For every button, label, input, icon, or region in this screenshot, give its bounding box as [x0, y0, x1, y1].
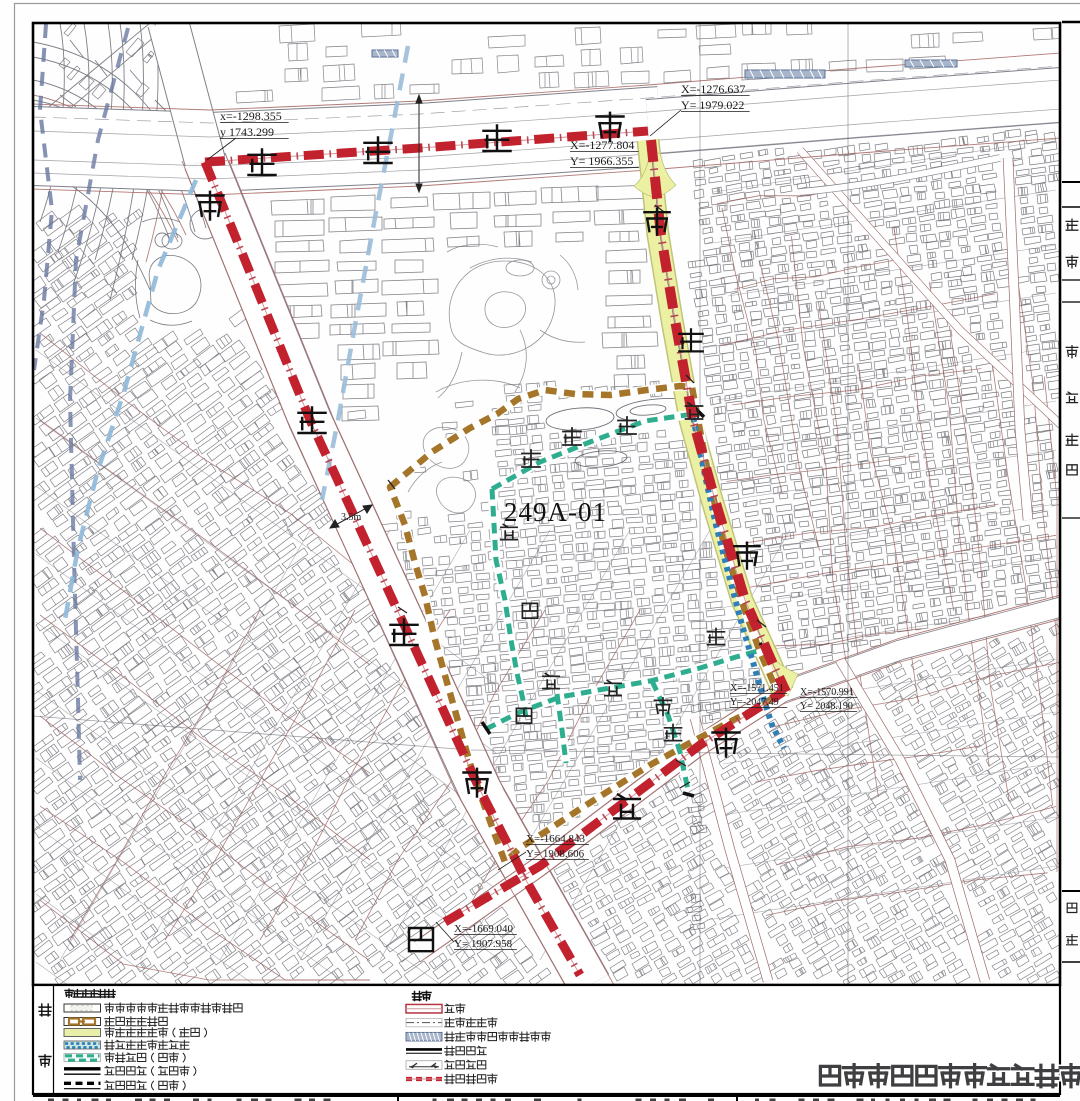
- svg-text:Y= 2048.190: Y= 2048.190: [800, 701, 853, 712]
- svg-text:y 1743.299: y 1743.299: [220, 125, 274, 139]
- svg-text:X=-1571.451: X=-1571.451: [730, 683, 784, 694]
- svg-text:3.5m: 3.5m: [341, 512, 362, 523]
- svg-text:Y=-2047.49: Y=-2047.49: [730, 697, 779, 708]
- svg-text:Y= 1966.355: Y= 1966.355: [570, 154, 633, 168]
- svg-text:Y= 1908.606: Y= 1908.606: [526, 848, 585, 860]
- svg-text:X=-1669.040: X=-1669.040: [454, 923, 514, 935]
- svg-text:X=-1664.843: X=-1664.843: [526, 833, 586, 845]
- svg-text:x=-1298.355: x=-1298.355: [220, 109, 282, 123]
- svg-text:Y= 1979.022: Y= 1979.022: [681, 98, 744, 112]
- svg-text:X=-1277.804: X=-1277.804: [570, 138, 634, 152]
- svg-text:249A-01: 249A-01: [504, 497, 607, 527]
- svg-text:Y= 1907.958: Y= 1907.958: [454, 938, 513, 950]
- svg-text:X=-1570.991: X=-1570.991: [800, 687, 854, 698]
- svg-text:X=-1276.637: X=-1276.637: [681, 82, 745, 96]
